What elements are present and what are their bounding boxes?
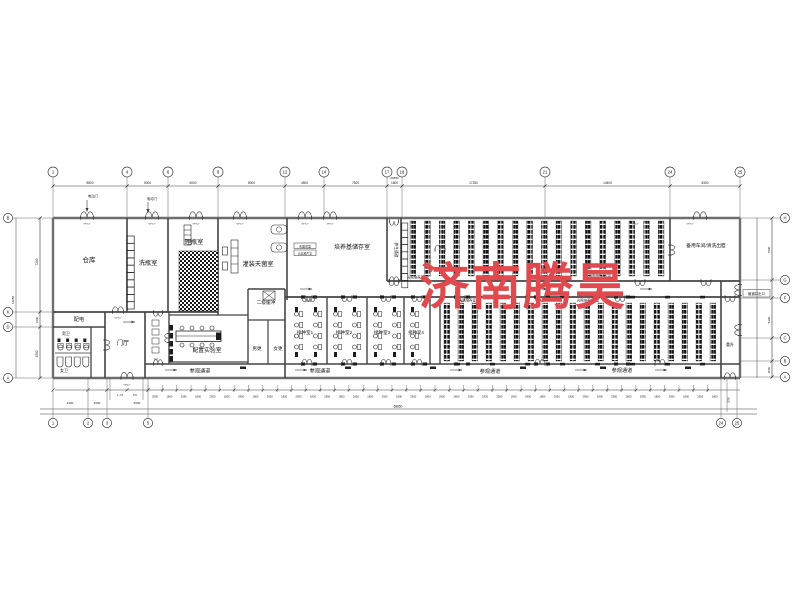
svg-text:重升: 重升 [726,341,734,347]
svg-text:WF527: WF527 [686,224,694,226]
svg-text:门厅: 门厅 [117,339,129,347]
svg-text:2950: 2950 [439,395,445,399]
svg-text:WF527: WF527 [326,224,334,226]
svg-text:24: 24 [719,421,724,426]
svg-text:K: K [7,310,10,315]
svg-text:1800: 1800 [482,395,488,399]
svg-text:管道井出口: 管道井出口 [748,291,765,296]
svg-text:1800: 1800 [367,395,373,399]
svg-text:2950: 2950 [554,395,560,399]
svg-text:仓库: 仓库 [83,255,97,264]
svg-text:A: A [7,376,10,381]
svg-text:1000: 1000 [35,316,39,323]
svg-text:2950: 2950 [353,395,359,399]
svg-text:1800: 1800 [195,395,201,399]
svg-text:1800: 1800 [568,395,574,399]
svg-text:WF527: WF527 [301,224,309,226]
svg-text:1800: 1800 [539,395,545,399]
svg-text:参观通道: 参观通道 [190,367,211,375]
svg-text:2000: 2000 [728,397,731,403]
svg-text:4500: 4500 [301,181,308,185]
svg-text:2950: 2950 [209,395,215,399]
svg-text:男卫: 男卫 [62,331,70,336]
svg-text:1800: 1800 [396,395,402,399]
svg-text:C: C [783,336,786,341]
svg-text:1800: 1800 [310,395,316,399]
svg-text:2950: 2950 [583,395,589,399]
svg-text:7500: 7500 [767,246,771,253]
svg-text:G: G [783,278,786,283]
svg-text:B: B [7,216,10,221]
svg-text:济南腾昊: 济南腾昊 [419,259,627,315]
svg-text:电动门: 电动门 [147,196,158,201]
svg-text:17250: 17250 [469,181,478,185]
svg-text:2950: 2950 [296,395,302,399]
svg-text:2950: 2950 [611,395,617,399]
svg-text:2950: 2950 [267,395,273,399]
svg-text:2000: 2000 [94,401,101,405]
svg-text:女卫: 女卫 [60,367,68,373]
svg-text:WF527: WF527 [236,224,244,226]
svg-text:25: 25 [735,421,740,426]
svg-text:14400: 14400 [603,181,612,185]
svg-text:WF527: WF527 [123,385,131,387]
svg-text:配电: 配电 [74,315,84,323]
svg-text:17: 17 [385,170,390,175]
svg-text:1800: 1800 [252,395,258,399]
svg-text:天菌后室: 天菌后室 [299,243,311,248]
svg-text:4550: 4550 [35,350,39,357]
svg-text:2950: 2950 [382,395,388,399]
svg-text:8300: 8300 [701,181,708,185]
svg-text:参观通道: 参观通道 [480,367,501,375]
svg-text:1-1.8: 1-1.8 [117,393,123,397]
svg-text:2000: 2000 [767,366,771,373]
svg-text:1800: 1800 [511,395,517,399]
svg-text:5000: 5000 [144,181,151,185]
svg-text:8000: 8000 [248,181,255,185]
svg-text:电动门: 电动门 [88,194,99,199]
svg-text:6000: 6000 [189,181,196,185]
svg-text:1800: 1800 [683,395,689,399]
svg-text:2950: 2950 [324,395,330,399]
svg-text:WF527: WF527 [148,224,156,226]
svg-text:2950: 2950 [697,395,703,399]
svg-text:灌装天菌室: 灌装天菌室 [243,260,274,268]
svg-text:7200: 7200 [35,258,39,265]
svg-text:1800: 1800 [654,395,660,399]
svg-text:1800: 1800 [712,395,718,399]
svg-text:1800: 1800 [626,395,632,399]
svg-text:H: H [783,216,786,221]
svg-text:WF527: WF527 [83,224,91,226]
svg-text:8-8: 8-8 [133,393,137,397]
svg-text:WF527: WF527 [114,318,122,320]
svg-text:女更: 女更 [273,345,283,352]
svg-text:14950: 14950 [11,295,15,304]
svg-text:24: 24 [668,170,673,175]
svg-text:2950: 2950 [238,395,244,399]
svg-text:高温模片室: 高温模片室 [298,251,312,255]
svg-text:配置实验室: 配置实验室 [193,346,222,354]
svg-text:12: 12 [283,170,288,175]
svg-text:68850: 68850 [394,405,403,409]
svg-text:WF527: WF527 [192,224,200,226]
svg-text:2950: 2950 [181,395,187,399]
svg-text:养生通道: 养生通道 [394,242,399,257]
svg-text:7500: 7500 [352,181,359,185]
svg-text:1800: 1800 [339,395,345,399]
svg-text:8800: 8800 [86,181,93,185]
svg-text:25: 25 [738,170,743,175]
svg-text:5600: 5600 [134,401,141,405]
svg-text:2950: 2950 [669,395,675,399]
svg-text:WF527: WF527 [631,224,639,226]
svg-text:2950: 2950 [152,395,158,399]
svg-text:1800: 1800 [391,181,398,185]
svg-text:A: A [784,375,787,380]
svg-text:2950: 2950 [640,395,646,399]
svg-text:2950: 2950 [525,395,531,399]
svg-text:21: 21 [543,170,548,175]
svg-text:1800: 1800 [281,395,287,399]
svg-text:接种室3: 接种室3 [374,329,391,336]
svg-text:B: B [784,359,787,364]
svg-text:69850: 69850 [390,176,399,180]
svg-text:F: F [784,296,787,301]
svg-text:1800: 1800 [453,395,459,399]
svg-text:4300: 4300 [67,401,74,405]
svg-text:5300: 5300 [767,316,771,323]
svg-text:2950: 2950 [468,395,474,399]
svg-text:参观通道: 参观通道 [310,367,331,375]
svg-text:参观通道: 参观通道 [612,366,633,374]
svg-text:1800: 1800 [224,395,230,399]
svg-text:2950: 2950 [496,395,502,399]
svg-text:18: 18 [400,170,405,175]
svg-text:1800: 1800 [425,395,431,399]
svg-text:14: 14 [322,170,327,175]
svg-text:D: D [6,325,9,330]
svg-text:洗瓶室: 洗瓶室 [139,259,158,267]
svg-text:1800: 1800 [597,395,603,399]
svg-text:培养基储存室: 培养基储存室 [334,243,370,251]
svg-text:备用车间/清洗出笤: 备用车间/清洗出笤 [686,242,726,249]
svg-text:2950: 2950 [410,395,416,399]
svg-text:1800: 1800 [166,395,172,399]
